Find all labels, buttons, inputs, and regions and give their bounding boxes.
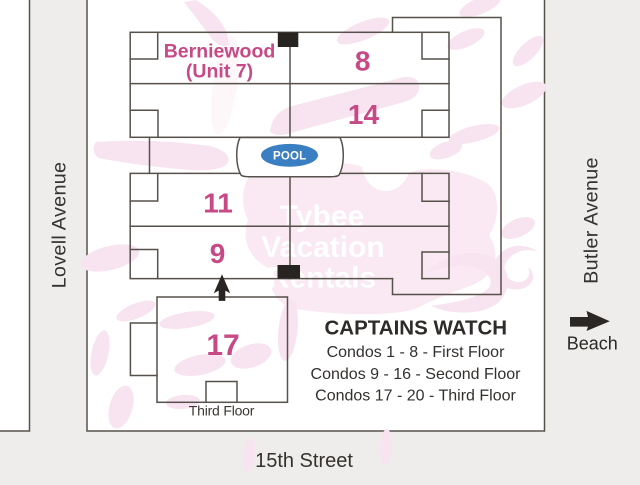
svg-text:Berniewood: Berniewood (164, 40, 276, 62)
svg-text:CAPTAINS WATCH: CAPTAINS WATCH (325, 316, 508, 339)
svg-text:(Unit 7): (Unit 7) (186, 60, 253, 82)
svg-text:Tybee: Tybee (280, 200, 364, 233)
svg-text:15th Street: 15th Street (255, 450, 353, 472)
svg-text:9: 9 (210, 238, 226, 269)
svg-text:Condos 17 - 20 - Third Floor: Condos 17 - 20 - Third Floor (315, 387, 516, 404)
svg-text:Beach: Beach (567, 334, 618, 354)
svg-text:Condos 9 - 16 - Second Floor: Condos 9 - 16 - Second Floor (311, 366, 522, 383)
svg-text:Third Floor: Third Floor (189, 403, 255, 419)
svg-text:Lovell Avenue: Lovell Avenue (48, 162, 70, 289)
svg-text:POOL: POOL (273, 151, 306, 163)
svg-text:14: 14 (348, 99, 380, 130)
svg-text:Condos 1 - 8 - First Floor: Condos 1 - 8 - First Floor (327, 344, 506, 361)
svg-text:11: 11 (203, 187, 233, 218)
svg-text:17: 17 (206, 329, 239, 362)
svg-text:Butler Avenue: Butler Avenue (581, 157, 603, 284)
svg-text:8: 8 (355, 45, 371, 76)
svg-text:Vacation: Vacation (261, 231, 384, 264)
